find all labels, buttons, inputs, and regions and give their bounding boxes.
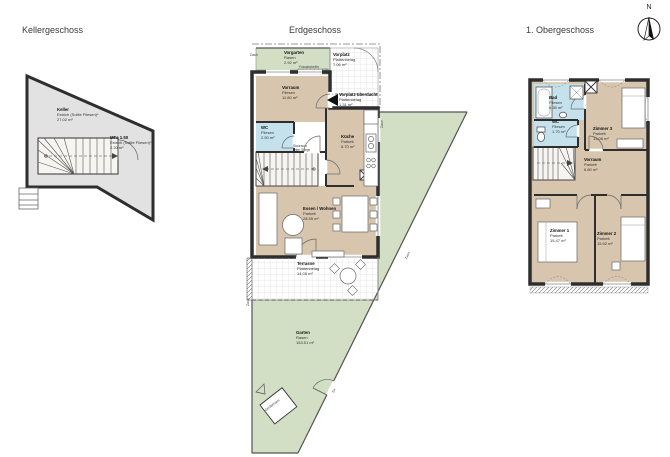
coffee-table	[283, 215, 304, 236]
tv-bench	[312, 251, 344, 257]
toilet-tank	[537, 127, 545, 132]
room-label-essen-wohnen: Essen / Wohnen Parkett 28.55 m²	[303, 206, 336, 221]
obergeschoss-title: 1. Obergeschoss	[526, 25, 594, 35]
room-area: 6.80 m²	[584, 167, 601, 172]
room-label-vorgarten: Vorgarten Rasen 2.92 m²	[284, 50, 304, 65]
keller-light-shaft	[19, 188, 38, 209]
zaun-label-top: Zaun	[380, 120, 384, 128]
eg-staircase	[256, 152, 318, 186]
toilet	[537, 132, 544, 141]
room-area: 28.55 m²	[303, 216, 336, 221]
washbasin	[559, 112, 566, 118]
north-arrow-icon	[636, 11, 662, 47]
room-area: 6.35 m²	[549, 105, 563, 110]
floorplan-sheet: Kellergeschoss Erdgeschoss 1. Obergescho…	[0, 0, 670, 457]
room-area: 13.08 m²	[593, 136, 612, 141]
room-label-zimmer1: Zimmer 1 Parkett 15.47 m²	[550, 228, 569, 243]
room-area: 1.70 m²	[552, 129, 566, 134]
bed-zimmer2	[621, 217, 645, 261]
room-area: 153.51 m²	[296, 340, 314, 345]
stauraum-line2: unter Stiege	[293, 149, 310, 153]
kitchen-counter	[364, 110, 378, 186]
wardrobe-zimmer1	[536, 199, 550, 208]
room-label-vorplatz-ueberdacht: Vorplatz überdacht Plattenbelag 1.31 m²	[339, 92, 378, 107]
room-area: 7.06 m²	[333, 62, 355, 67]
room-area: 14.05 m²	[297, 271, 319, 276]
room-label-vorplatz: Vorplatz Plattenbelag 7.06 m²	[333, 52, 355, 67]
north-label: N	[636, 4, 662, 11]
room-area: 11.80 m²	[282, 95, 299, 100]
desk-zimmer3	[617, 139, 643, 148]
room-area: 1.31 m²	[339, 102, 378, 107]
keller-staircase	[38, 138, 118, 174]
room-label-zimmer2: Zimmer 2 Parkett 15.92 m²	[597, 231, 616, 246]
room-label-vorraum-eg: Vorraum Fliesen 11.80 m²	[282, 85, 299, 100]
zaun-label-left: Zaun	[246, 298, 250, 306]
room-label-kueche: Küche Parkett 6.70 m²	[341, 134, 355, 149]
gravel-strip	[530, 287, 648, 293]
room-label-keller: Keller Estrich (Sollte Fliesen)* 27.02 m…	[57, 107, 99, 122]
room-area: 6.70 m²	[341, 144, 355, 149]
erdgeschoss-title: Erdgeschoss	[289, 25, 341, 35]
north-arrow: N	[636, 4, 662, 52]
side-table	[285, 238, 302, 254]
sofa	[259, 193, 277, 245]
dining-table	[342, 196, 368, 232]
room-area: 15.47 m²	[550, 238, 569, 243]
privacy-screen	[247, 258, 252, 300]
keller-title: Kellergeschoss	[22, 25, 83, 35]
room-area: 2.20 m²	[110, 145, 152, 150]
room-label-wc-eg: WC Fliesen 2.50 m²	[261, 125, 275, 140]
room-label-vorraum-og: Vorraum Parkett 6.80 m²	[584, 157, 601, 172]
bed-zimmer3	[622, 88, 645, 128]
dach-label: Dach	[250, 53, 258, 57]
room-label-zimmer3: Zimmer 3 Parkett 13.08 m²	[593, 126, 612, 141]
stauraum-label: Stauraum unter Stiege	[293, 145, 310, 153]
room-label-terrasse: Terrasse Plattenbelag 14.05 m²	[297, 261, 319, 276]
og-chimney	[585, 81, 597, 93]
room-label-wc-og: WC Fliesen 1.70 m²	[552, 119, 566, 134]
room-area: 15.92 m²	[597, 241, 616, 246]
room-label-garten: Garten Rasen 153.51 m²	[296, 330, 314, 345]
og-staircase	[533, 147, 575, 180]
room-label-bad: Bad Fliesen 6.35 m²	[549, 95, 563, 110]
obergeschoss-floorplan	[525, 75, 660, 295]
side-table-zimmer2	[612, 262, 620, 270]
room-label-keller-stiege: MFa 1.50 Estrich (Sollte Fliesen)* 2.20 …	[110, 135, 152, 150]
fussabstreifer-label: Fussabstreifer	[299, 66, 319, 70]
room-area: 2.50 m²	[261, 135, 275, 140]
terrace-table	[340, 268, 356, 284]
room-area: 27.02 m²	[57, 117, 99, 122]
